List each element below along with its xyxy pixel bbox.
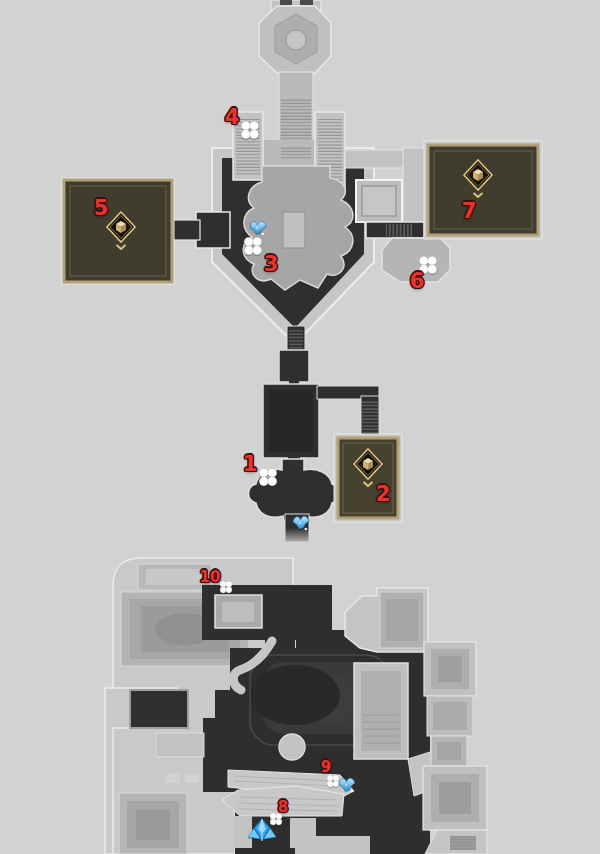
chest-icon[interactable] — [104, 210, 138, 252]
flower-icon[interactable] — [256, 465, 280, 489]
marker-number-6[interactable]: 6 — [410, 271, 425, 292]
marker-number-1[interactable]: 1 — [243, 454, 258, 475]
marker-number-4[interactable]: 4 — [225, 107, 240, 128]
origami-bird-icon[interactable] — [248, 816, 276, 844]
marker-number-3[interactable]: 3 — [264, 254, 279, 275]
marker-number-8[interactable]: 8 — [278, 800, 288, 815]
chest-icon[interactable] — [461, 158, 495, 200]
marker-number-7[interactable]: 7 — [462, 201, 477, 222]
flower-icon[interactable] — [238, 118, 262, 142]
marker-number-5[interactable]: 5 — [94, 198, 109, 219]
bird-icon[interactable] — [291, 514, 311, 534]
game-map: 12345678910 — [0, 0, 600, 854]
marker-layer: 12345678910 — [0, 0, 600, 854]
bird-icon[interactable] — [248, 219, 268, 239]
marker-number-10[interactable]: 10 — [200, 570, 221, 585]
marker-number-9[interactable]: 9 — [321, 760, 331, 775]
bird-icon[interactable] — [337, 776, 357, 796]
marker-number-2[interactable]: 2 — [376, 484, 391, 505]
